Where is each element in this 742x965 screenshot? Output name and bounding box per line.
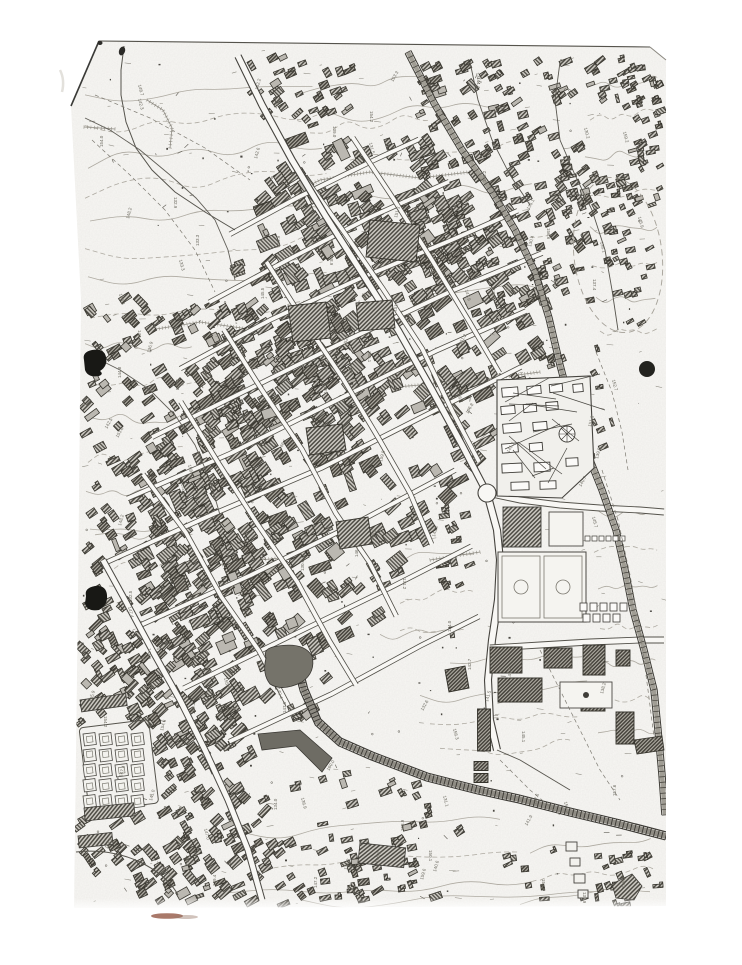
svg-text:132.9: 132.9 <box>173 197 178 209</box>
svg-text:139.4: 139.4 <box>212 874 217 886</box>
svg-text:159.9: 159.9 <box>276 235 281 247</box>
svg-text:142.7: 142.7 <box>467 658 472 670</box>
svg-text:155.1: 155.1 <box>367 351 372 363</box>
svg-text:147.2: 147.2 <box>313 876 318 888</box>
svg-text:139.7: 139.7 <box>207 421 212 433</box>
svg-text:143.9: 143.9 <box>137 330 142 342</box>
svg-text:140.1: 140.1 <box>205 503 210 515</box>
svg-text:143.6: 143.6 <box>147 648 152 660</box>
svg-text:144.4: 144.4 <box>476 77 481 89</box>
svg-text:150.4: 150.4 <box>588 659 593 671</box>
svg-text:134.0: 134.0 <box>273 798 278 810</box>
svg-text:158.5: 158.5 <box>185 855 190 867</box>
svg-text:154.2: 154.2 <box>369 111 374 123</box>
svg-text:154.2: 154.2 <box>103 716 108 728</box>
svg-text:156.6: 156.6 <box>546 228 551 240</box>
svg-text:145.5: 145.5 <box>260 287 265 299</box>
svg-text:149.2: 149.2 <box>323 382 328 394</box>
svg-text:146.0: 146.0 <box>491 287 496 299</box>
svg-text:147.0: 147.0 <box>282 701 287 713</box>
svg-text:133.3: 133.3 <box>195 234 200 246</box>
svg-text:131.2: 131.2 <box>402 578 407 590</box>
svg-text:157.6: 157.6 <box>612 784 617 796</box>
svg-text:154.0: 154.0 <box>99 135 104 147</box>
svg-text:150.1: 150.1 <box>191 702 196 714</box>
svg-text:158.2: 158.2 <box>482 170 487 182</box>
svg-text:158.9: 158.9 <box>400 819 405 831</box>
svg-text:130.0: 130.0 <box>300 559 305 571</box>
svg-text:150.1: 150.1 <box>428 850 433 862</box>
svg-text:158.8: 158.8 <box>175 379 180 391</box>
svg-text:134.2: 134.2 <box>348 362 353 374</box>
svg-text:153.6: 153.6 <box>541 879 546 891</box>
svg-text:131.9: 131.9 <box>582 892 587 904</box>
svg-text:134.0: 134.0 <box>447 620 452 632</box>
svg-text:144.8: 144.8 <box>117 366 122 378</box>
svg-text:146.4: 146.4 <box>354 545 359 557</box>
svg-text:148.2: 148.2 <box>621 876 626 888</box>
svg-text:132.5: 132.5 <box>128 590 133 602</box>
svg-text:147.3: 147.3 <box>507 667 512 679</box>
svg-text:137.4: 137.4 <box>592 279 597 291</box>
svg-text:158.9: 158.9 <box>329 254 334 266</box>
svg-text:139.0: 139.0 <box>332 126 337 138</box>
svg-text:145.1: 145.1 <box>521 731 526 743</box>
